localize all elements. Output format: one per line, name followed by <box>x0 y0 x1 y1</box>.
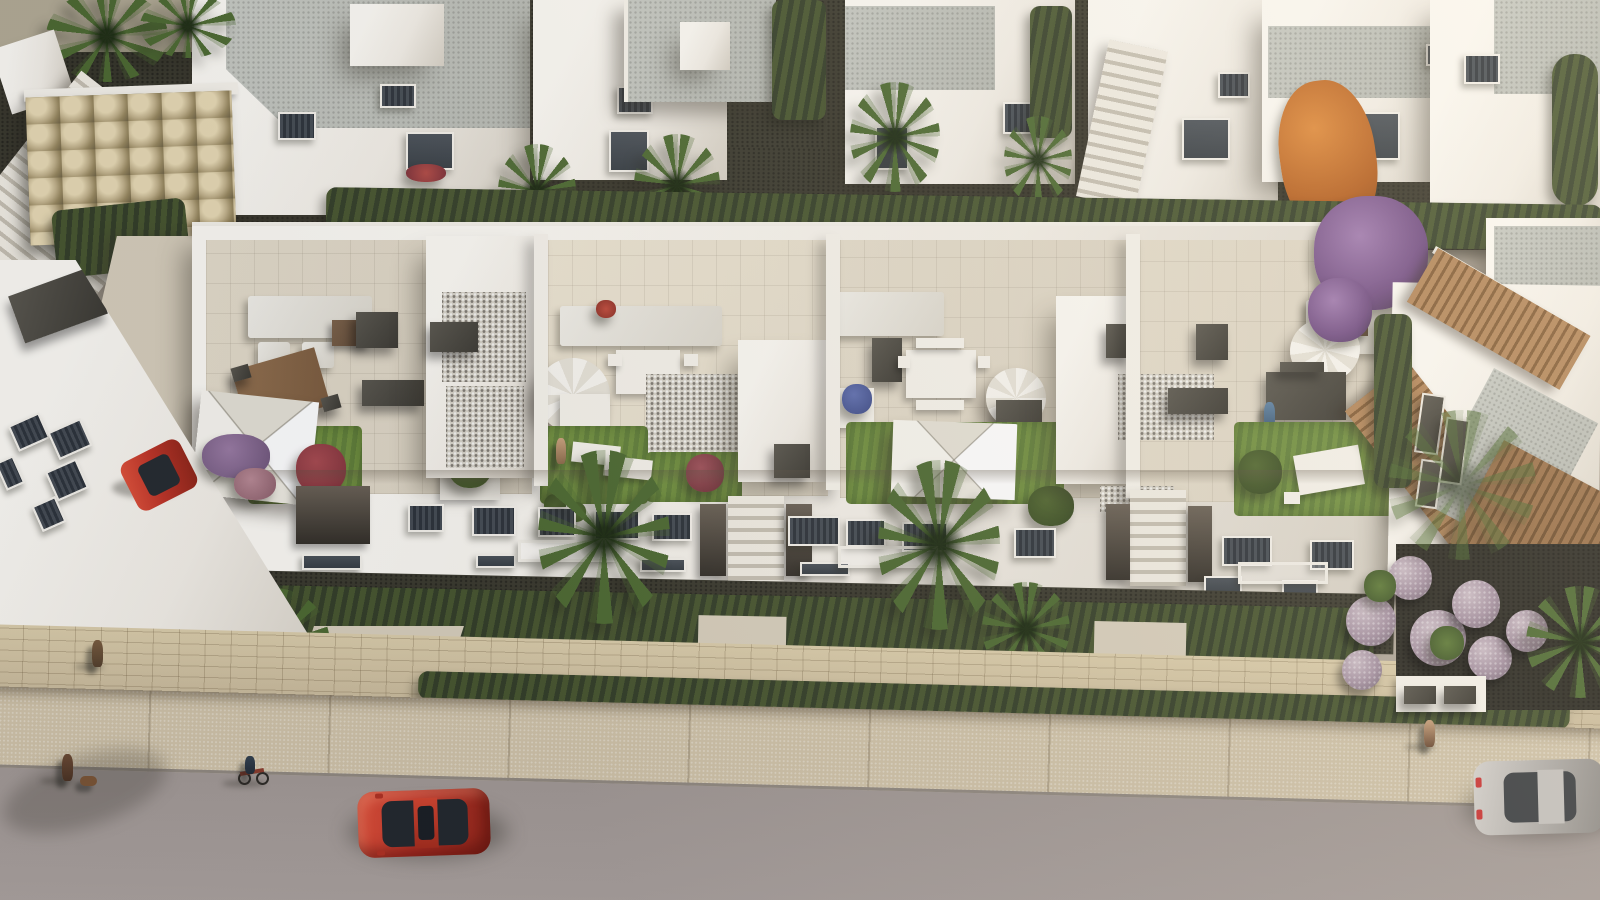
terrace-divider-wall <box>826 234 840 490</box>
entry-stairs <box>1130 490 1186 586</box>
fern-shrub <box>1364 570 1396 602</box>
person-on-terrace-lawn <box>556 438 566 464</box>
dining-chair <box>978 356 990 368</box>
storage-box <box>356 312 398 348</box>
flat-roof <box>845 6 995 90</box>
balcony-railing <box>1238 562 1328 584</box>
car-taillight <box>1476 809 1482 819</box>
car-sunroof <box>417 806 434 841</box>
pedestrian-near-gate <box>1424 720 1435 747</box>
pedestrian-on-path <box>92 640 103 667</box>
car-roof <box>1537 769 1564 824</box>
red-car-street <box>357 788 491 859</box>
rear-house-1 <box>192 0 530 215</box>
bicycle-wheel <box>256 772 269 785</box>
dining-chair <box>608 354 622 366</box>
entry-porch <box>1188 506 1212 582</box>
round-lavender-bush <box>1452 580 1500 628</box>
window <box>0 455 25 491</box>
dining-chair <box>684 354 698 366</box>
car-mirror <box>377 850 385 855</box>
purple-bougainvillea <box>1308 278 1372 342</box>
palm-tree <box>878 460 1000 630</box>
dining-chair <box>898 356 910 368</box>
banana-plant-cluster <box>850 82 940 192</box>
white-dining-table <box>906 350 976 398</box>
facade-window <box>788 516 840 546</box>
storage-box <box>362 380 424 406</box>
round-lavender-bush <box>1346 596 1396 646</box>
terrace-divider-wall <box>1126 234 1140 498</box>
rooflight-box <box>430 322 478 352</box>
palm-tree <box>1388 410 1536 560</box>
corner-sofa <box>836 292 944 336</box>
window <box>45 458 89 501</box>
storage-box <box>1196 324 1228 360</box>
dog-walker <box>62 754 73 781</box>
pebble-court <box>446 386 524 468</box>
stair-tower <box>738 340 836 482</box>
round-lavender-bush <box>1342 650 1382 690</box>
entry-porch <box>700 504 726 576</box>
cypress-column <box>1552 54 1598 206</box>
flat-roof <box>1268 26 1436 98</box>
window <box>31 496 66 532</box>
roof-chimney-box <box>680 22 730 70</box>
entry-stairs <box>728 496 784 586</box>
entry-door <box>1182 118 1230 160</box>
palm-tree <box>538 450 670 624</box>
lower-window <box>302 554 362 570</box>
car-mirror <box>375 793 383 798</box>
dining-chair-row <box>916 400 964 410</box>
facade-window <box>472 506 516 536</box>
round-lavender-bush <box>1468 636 1512 680</box>
rear-roof-block <box>624 0 776 102</box>
silver-car-street-right-edge <box>1473 758 1600 835</box>
red-flower-pot <box>596 300 616 318</box>
car-taillight <box>1475 777 1481 787</box>
blue-flower-planter <box>842 384 872 414</box>
gate-door <box>1404 686 1436 704</box>
storage-box <box>1168 388 1228 414</box>
dining-chair-row <box>916 338 964 348</box>
side-table <box>1284 492 1300 504</box>
gate-door <box>1444 686 1476 704</box>
long-outdoor-sofa <box>560 306 722 346</box>
stair-tower <box>426 236 542 478</box>
banana-plant-cluster <box>1004 116 1072 204</box>
bistro-table <box>560 394 610 426</box>
pink-balcony-flowers <box>234 468 276 500</box>
hedge-between-houses <box>772 0 826 120</box>
facade-window <box>1014 528 1056 558</box>
window <box>278 112 316 140</box>
red-flower-bed <box>406 164 446 182</box>
window <box>380 84 416 108</box>
pebble-court <box>646 374 742 454</box>
exterior-staircase <box>1076 40 1168 209</box>
dining-chair-row <box>1280 362 1324 372</box>
window <box>1464 54 1500 84</box>
dog <box>80 776 97 786</box>
window <box>8 412 50 451</box>
entry-porch <box>296 486 370 544</box>
window <box>1218 72 1250 98</box>
terrace-divider-wall <box>534 234 548 486</box>
fern-shrub <box>1430 626 1464 660</box>
lower-window <box>476 554 516 568</box>
window <box>47 418 92 460</box>
facade-window <box>408 504 444 532</box>
car-glass <box>136 452 182 498</box>
entry-porch <box>1106 504 1130 580</box>
cyclist-on-sidewalk <box>245 756 255 774</box>
roof-tower <box>350 4 444 66</box>
green-shrub <box>1028 486 1074 526</box>
aerial-render-scene <box>0 0 1600 900</box>
facade-edge-shadow <box>195 470 1395 484</box>
dark-dining-table <box>1266 372 1346 420</box>
